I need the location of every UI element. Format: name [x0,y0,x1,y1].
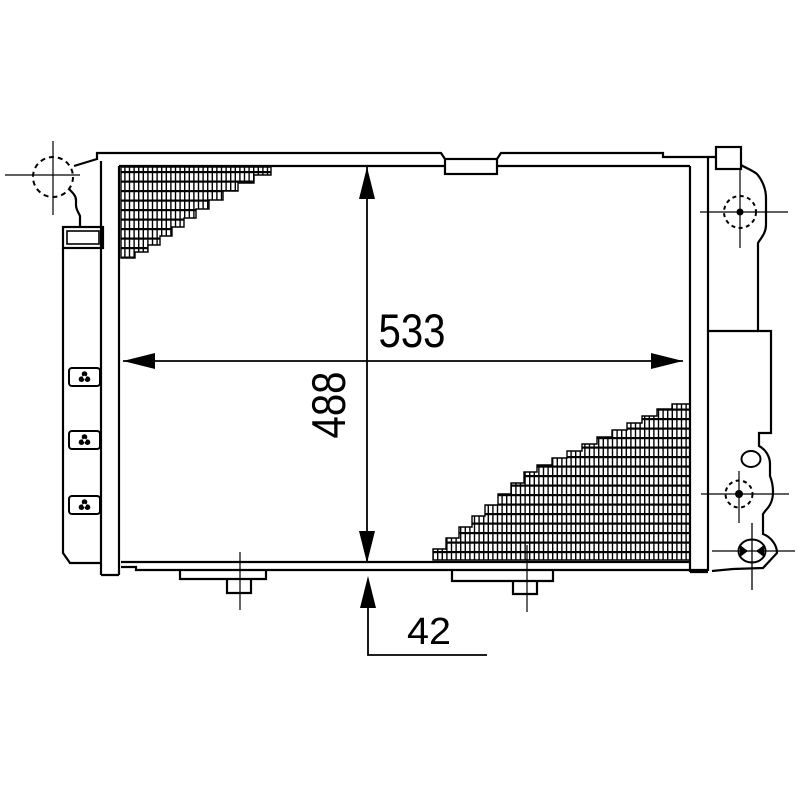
dimension-offset-label: 42 [407,611,451,653]
bracket-top-tab [716,147,741,169]
dimension-width-label: 533 [379,304,446,357]
radiator-technical-drawing: 533 488 42 [0,0,800,800]
clip-1 [69,368,100,386]
top-mounting-tab [445,159,497,174]
dimension-height-label: 488 [302,372,355,439]
clip-3 [69,496,100,514]
drawing-svg: 533 488 42 [0,0,800,800]
bracket-oval-hole [742,451,761,467]
clip-2 [69,431,100,449]
